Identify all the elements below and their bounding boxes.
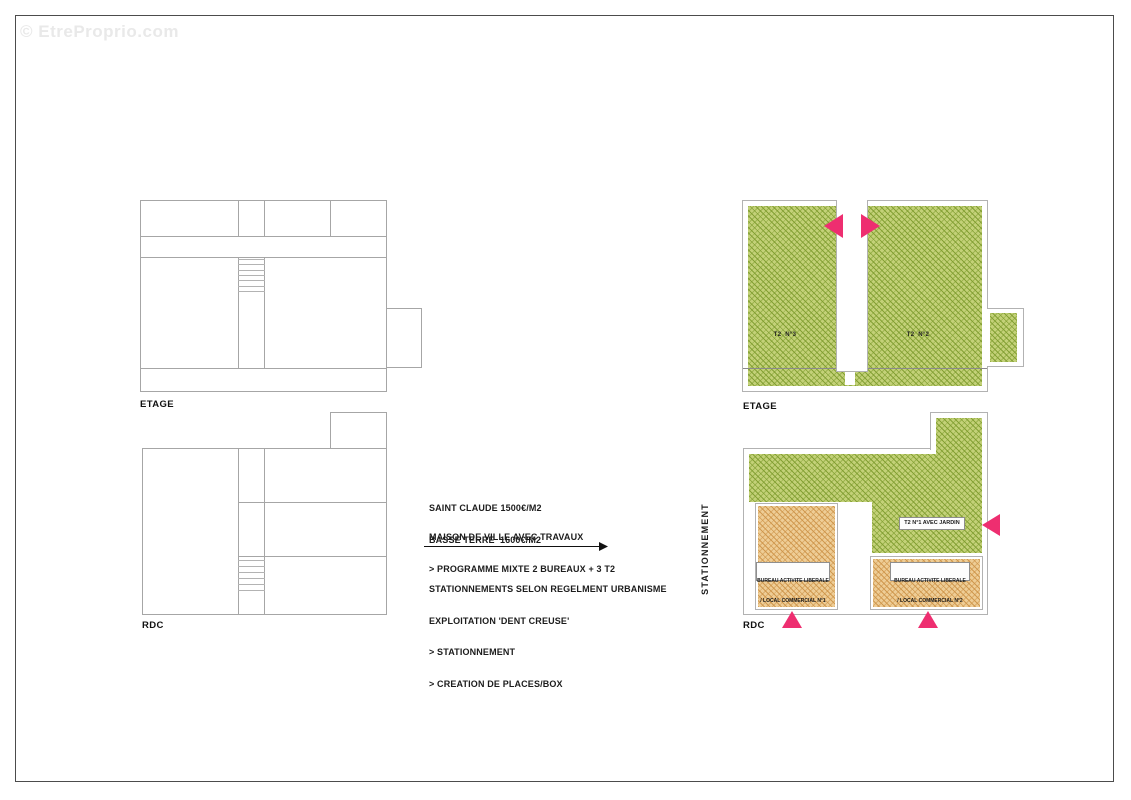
- etage-outline-plan: [140, 200, 387, 392]
- unit-t2n1-label: T2 N°1 AVEC JARDIN: [899, 517, 965, 530]
- wall: [238, 502, 387, 503]
- stair-step: [238, 286, 265, 287]
- etage-colored-plan: T2 N°3 T2 N°2: [742, 200, 1024, 392]
- stationnement-vertical-label: STATIONNEMENT: [700, 503, 710, 595]
- bureau1-label-line2: / LOCAL COMMERCIAL N°1: [757, 598, 829, 605]
- bureau2-label-line1: BUREAU ACTIVITE LIBERALE: [891, 578, 969, 585]
- wall: [140, 368, 387, 369]
- bureau2-label-line2: / LOCAL COMMERCIAL N°2: [891, 598, 969, 605]
- stair-step: [238, 280, 265, 281]
- parking-line-1: STATIONNEMENTS SELON REGELMENT URBANISME: [429, 584, 667, 595]
- bureau1-label: BUREAU ACTIVITE LIBERALE / LOCAL COMMERC…: [756, 562, 830, 581]
- unit-t2n3-label: T2 N°3: [750, 332, 820, 338]
- wall: [238, 556, 387, 557]
- stair-step: [238, 578, 265, 579]
- stair-step: [238, 590, 265, 591]
- stairwell-wall: [264, 257, 265, 368]
- stair-step: [238, 264, 265, 265]
- parking-note: STATIONNEMENTS SELON REGELMENT URBANISME…: [429, 563, 667, 710]
- stair-step: [238, 584, 265, 585]
- etage-annex: [987, 308, 1024, 367]
- unit-t2n2-label: T2 N°2: [883, 332, 953, 338]
- wall: [238, 200, 239, 236]
- rdc-outline-annex: [330, 412, 387, 449]
- etage-left-label: ETAGE: [140, 399, 174, 410]
- stair-step: [238, 572, 265, 573]
- flow-arrow-shaft: [424, 546, 600, 547]
- stair-step: [238, 270, 265, 271]
- corridor-notch: [845, 372, 855, 385]
- rdc-outline-plan: [142, 412, 387, 615]
- wall: [330, 200, 331, 236]
- stair-step: [238, 291, 265, 292]
- rdc-left-label: RDC: [142, 620, 164, 631]
- stair-step: [238, 560, 265, 561]
- etage-outline-annex: [386, 308, 422, 368]
- annex-green-area: [990, 313, 1017, 362]
- program-line-1: MAISON DE VILLE AVEC TRAVAUX: [429, 532, 615, 543]
- floor-plan-sheet: © EtreProprio.com ETAGE RDC: [0, 0, 1131, 800]
- rdc-colored-plan: T2 N°1 AVEC JARDIN BUREAU ACTIVITE LIBER…: [743, 412, 1023, 632]
- parking-line-2: EXPLOITATION 'DENT CREUSE': [429, 616, 667, 627]
- parking-line-4: > CREATION DE PLACES/BOX: [429, 679, 667, 690]
- bureau1-label-line1: BUREAU ACTIVITE LIBERALE: [757, 578, 829, 585]
- wall: [140, 236, 387, 237]
- rdc-right-label: RDC: [743, 620, 765, 631]
- etage-right-label: ETAGE: [743, 401, 777, 412]
- watermark-text: © EtreProprio.com: [20, 22, 179, 42]
- bureau2-label: BUREAU ACTIVITE LIBERALE / LOCAL COMMERC…: [890, 562, 970, 581]
- stair-step: [238, 259, 265, 260]
- parking-line-3: > STATIONNEMENT: [429, 647, 667, 658]
- wall: [264, 200, 265, 236]
- stairwell-wall: [238, 257, 239, 368]
- stair-step: [238, 566, 265, 567]
- stair-step: [238, 275, 265, 276]
